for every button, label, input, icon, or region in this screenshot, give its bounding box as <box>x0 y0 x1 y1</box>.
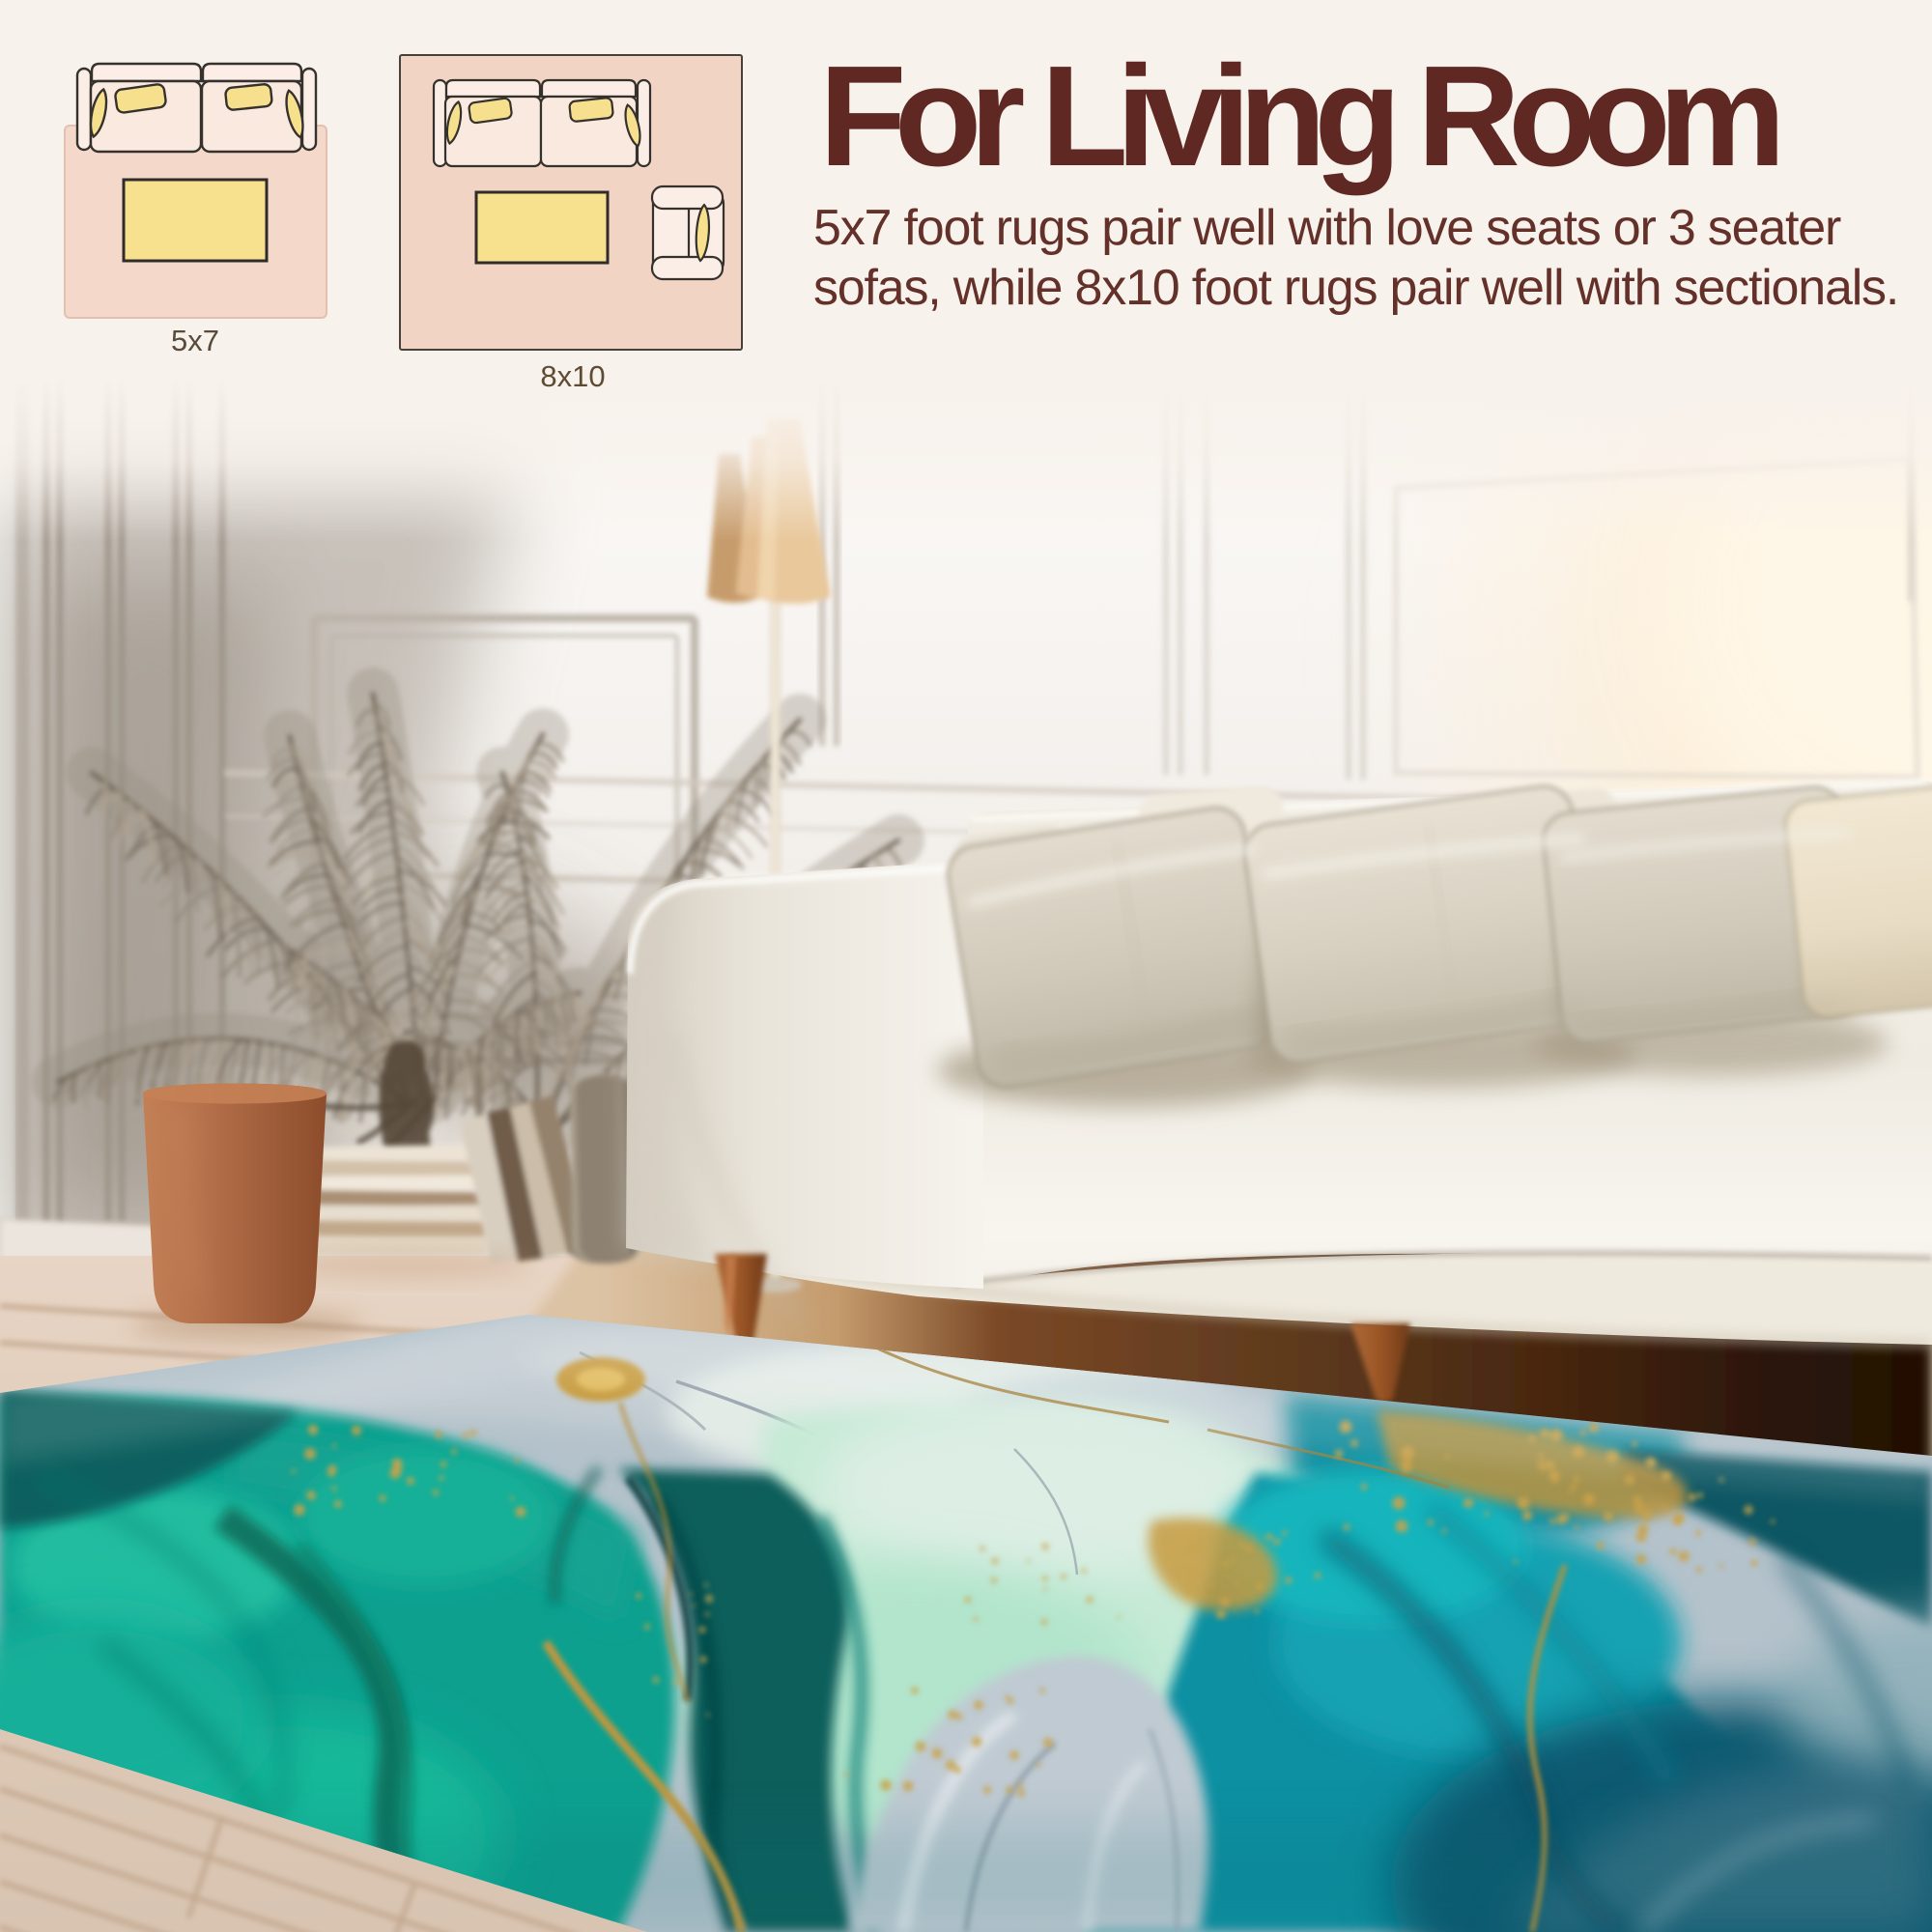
svg-text:8x10: 8x10 <box>540 359 605 393</box>
svg-text:5x7: 5x7 <box>171 324 219 357</box>
